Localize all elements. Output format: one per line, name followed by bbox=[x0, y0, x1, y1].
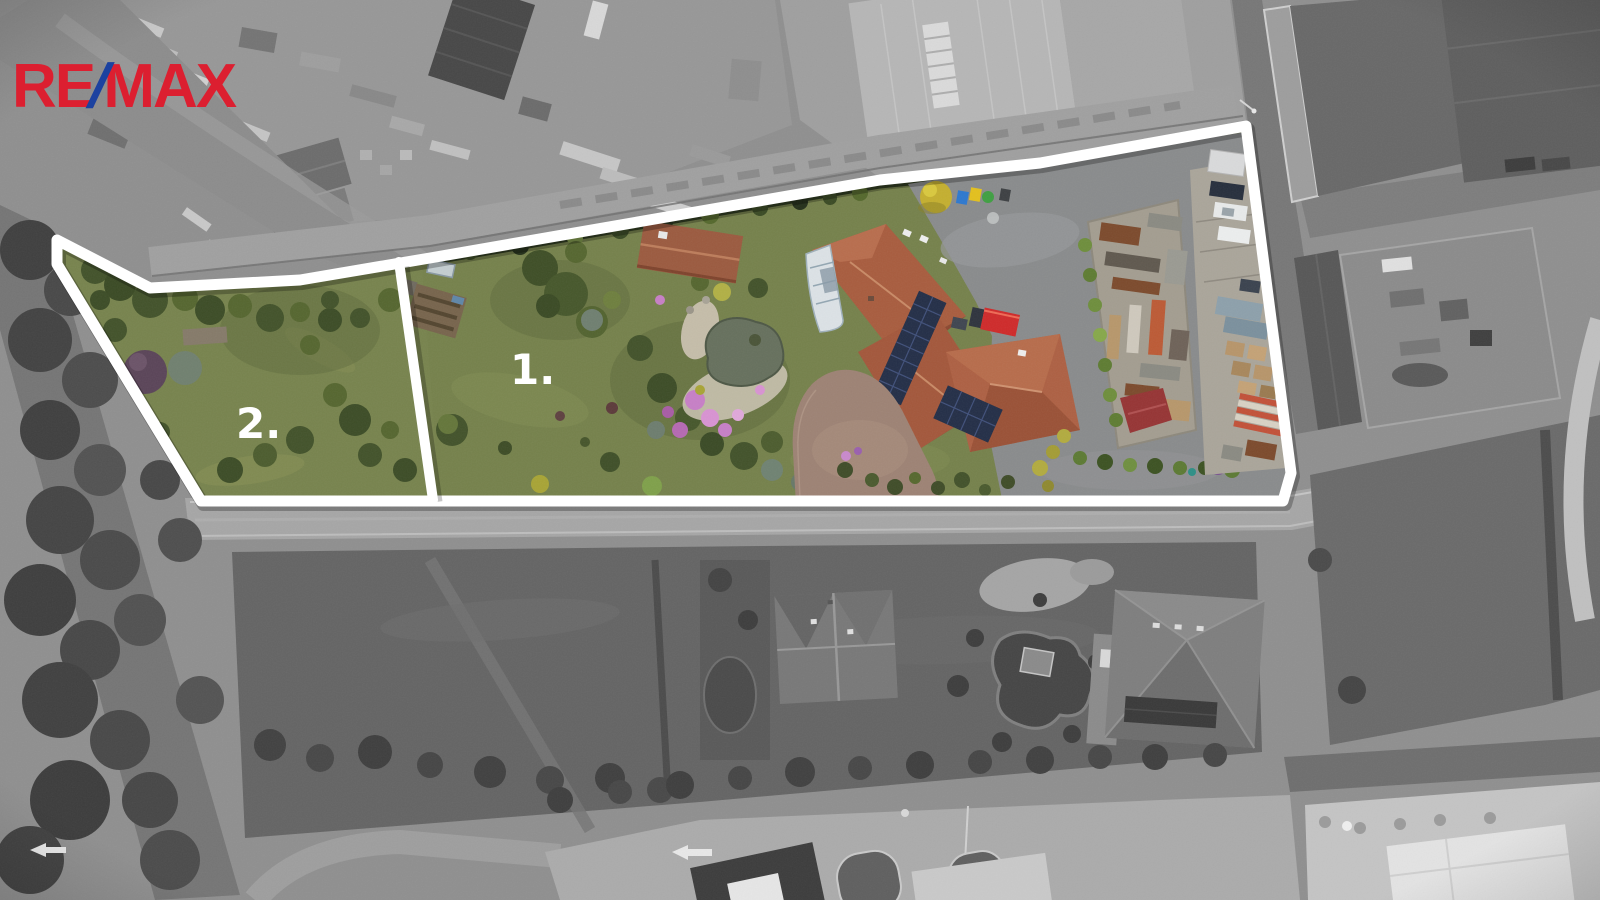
logo-max: MAX bbox=[103, 52, 235, 121]
vignette bbox=[0, 0, 1600, 900]
remax-logo: RE/MAX bbox=[12, 56, 235, 118]
parcel-1-label: 1. bbox=[510, 345, 555, 394]
parcel-2-label: 2. bbox=[236, 399, 281, 448]
aerial-scene: 1. 2. bbox=[0, 0, 1600, 900]
aerial-listing-image: 1. 2. RE/MAX bbox=[0, 0, 1600, 900]
logo-re: RE bbox=[12, 52, 94, 121]
